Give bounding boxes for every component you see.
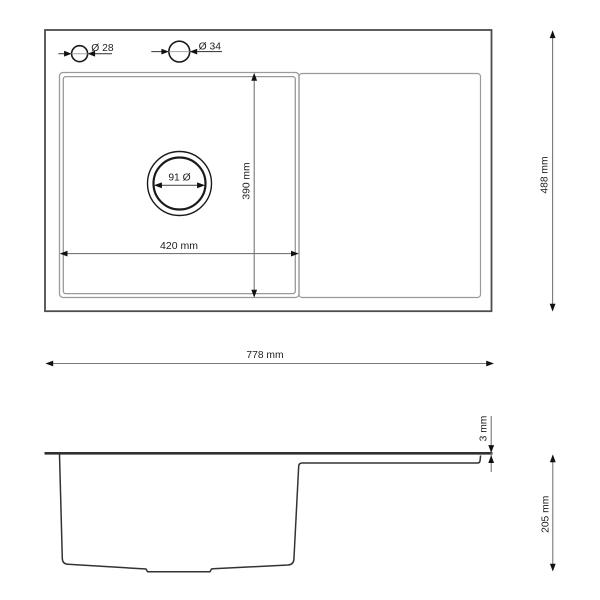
svg-text:91 Ø: 91 Ø <box>168 173 190 184</box>
svg-text:Ø 34: Ø 34 <box>199 41 222 52</box>
svg-text:390 mm: 390 mm <box>241 162 252 199</box>
svg-text:3 mm: 3 mm <box>479 416 490 442</box>
svg-text:Ø 28: Ø 28 <box>91 43 114 54</box>
svg-text:420 mm: 420 mm <box>160 240 198 252</box>
svg-text:205 mm: 205 mm <box>540 496 551 533</box>
svg-text:488 mm: 488 mm <box>540 156 551 193</box>
svg-text:778 mm: 778 mm <box>246 350 283 361</box>
